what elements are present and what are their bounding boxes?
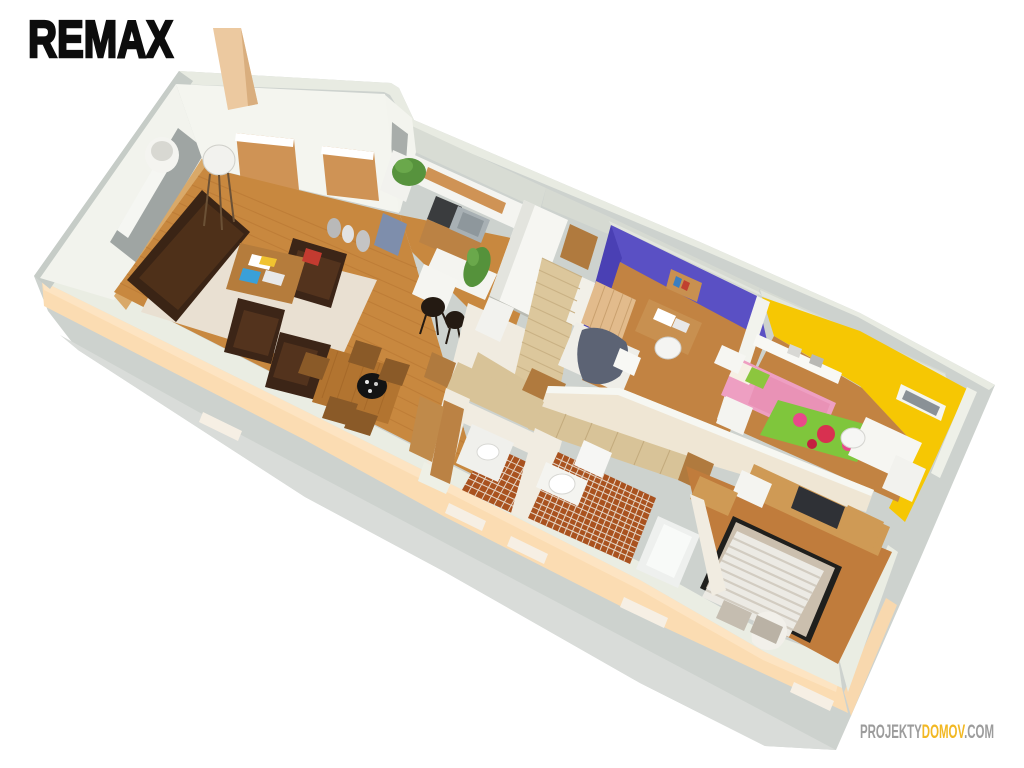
svg-text:REMAX: REMAX [28,11,173,69]
svg-text:PROJEKTYDOMOV.COM: PROJEKTYDOMOV.COM [860,722,994,743]
